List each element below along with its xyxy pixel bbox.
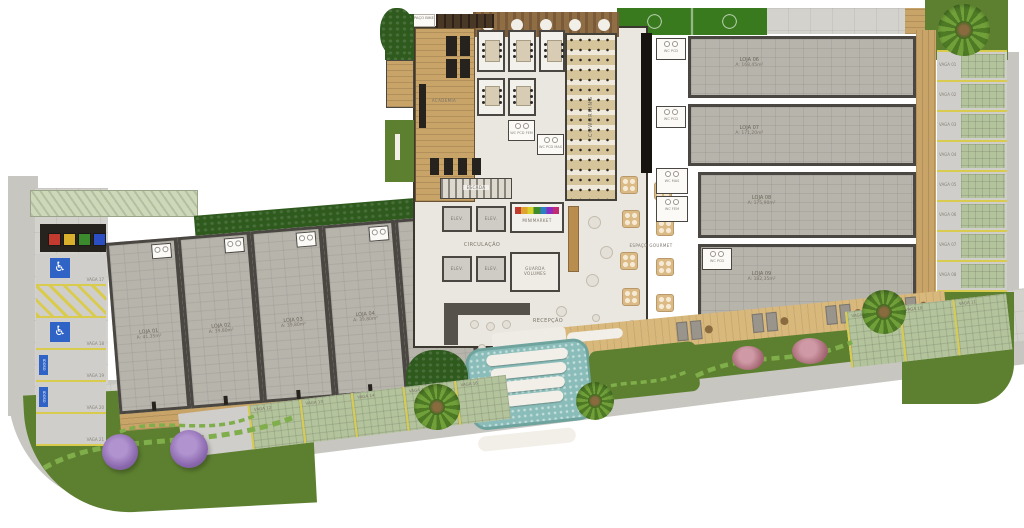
round-table: [588, 216, 601, 229]
unit-loja-08: LOJA 08A: 175,90m²: [698, 172, 916, 238]
circulation-label: CIRCULAÇÃO: [450, 242, 514, 248]
parking-stall: VAGA 12: [248, 400, 305, 450]
store-wc: [224, 237, 245, 254]
coworking-hall: COWORKING: [565, 33, 617, 201]
unit-label: LOJA 08A: 175,90m²: [748, 195, 776, 206]
lawn-left-column: [385, 120, 414, 182]
pavement-top-right: [766, 8, 906, 34]
pouf: [556, 306, 567, 317]
tree-top-left: [380, 8, 414, 56]
gourmet-table: [622, 288, 640, 306]
stall-label: VAGA 12: [254, 405, 272, 412]
elevator: ELEV.: [476, 206, 506, 232]
paver-strip: [961, 144, 1005, 168]
coworking-label: COWORKING: [588, 96, 594, 137]
gourmet-label: ESPAÇO GOURMET: [612, 243, 690, 248]
parking-stall: [36, 286, 106, 318]
stool: [486, 322, 495, 331]
stool: [470, 320, 479, 329]
small-room-left: [386, 60, 414, 108]
meeting-table: [485, 40, 500, 62]
store-door: [152, 401, 157, 410]
lounger-pair: [676, 319, 714, 341]
minimarket-shelf: [515, 207, 559, 214]
paver-strip: [961, 174, 1005, 198]
parking-stall: VAGA 13: [299, 393, 356, 443]
meeting-table: [485, 86, 500, 106]
store-wc: [151, 243, 172, 260]
wc-pcd-fem: WC PCD FEM: [508, 120, 535, 141]
parking-stall: VAGA 02: [937, 82, 1007, 112]
unit-loja-07: LOJA 07A: 171,20m²: [688, 104, 916, 166]
store-label: LOJA 01 A: 41,35m²: [122, 327, 175, 342]
wc-fem: WC FEM: [656, 196, 688, 222]
parking-left-column: VAGA 17 VAGA 18 IDOSO VAGA 19 IDOSO VAGA…: [36, 254, 106, 446]
palm-tree: [862, 290, 906, 334]
sidewalk-right: [1006, 52, 1019, 302]
meeting-table: [516, 86, 531, 106]
stall-label: VAGA 11: [958, 299, 976, 306]
palm-tree: [414, 384, 460, 430]
meeting-table: [547, 40, 562, 62]
unit-label: LOJA 06A: 168,45m²: [735, 57, 763, 68]
purple-tree: [102, 434, 138, 470]
wc-pcd-mas: WC PCD MAS: [537, 134, 564, 155]
elevator: ELEV.: [442, 256, 472, 282]
paver-strip: [961, 114, 1005, 138]
parking-stall: VAGA 05: [937, 172, 1007, 202]
gym-bench: [458, 158, 467, 175]
parking-stall: VAGA 16: [454, 375, 511, 425]
pouf: [592, 314, 600, 322]
emporio-shelf: [568, 206, 579, 272]
store-label: LOJA 02 A: 39,80m²: [195, 321, 248, 336]
meeting-room: [539, 30, 565, 72]
minimarket-label: MINIMARKET: [512, 218, 562, 223]
parking-stall: IDOSO VAGA 20: [36, 382, 106, 414]
pergola-table: [598, 19, 610, 31]
elevator-label: ELEV.: [444, 266, 470, 271]
stall-label: VAGA 13: [305, 399, 323, 406]
parking-stall: VAGA 08: [937, 262, 1007, 292]
unit-label: LOJA 07A: 171,20m²: [735, 125, 763, 136]
store-label: LOJA 03 A: 39,80m²: [267, 315, 320, 330]
treadmill: [460, 59, 471, 79]
elevator: ELEV.: [442, 206, 472, 232]
stall-label: VAGA 14: [357, 393, 375, 400]
stall-label: VAGA 04: [939, 152, 956, 157]
ramp-strip: [30, 190, 198, 217]
stall-label: VAGA 08: [939, 272, 956, 277]
parking-stall: VAGA 14: [351, 387, 408, 437]
paver-strip: [961, 264, 1005, 288]
parking-stall: VAGA 07: [937, 232, 1007, 262]
store-unit: LOJA 02 A: 39,80m²: [178, 231, 264, 408]
stall-label: VAGA 19: [87, 373, 104, 378]
stairs-label: ESCADA: [463, 185, 489, 190]
gourmet-table: [620, 176, 638, 194]
pink-bush: [792, 338, 828, 364]
luggage-room: GUARDAVOLUMES: [510, 252, 560, 292]
store-wc: [368, 225, 389, 242]
paver-strip: [961, 84, 1005, 108]
parking-stall: VAGA 18: [36, 318, 106, 350]
pink-bush: [732, 346, 764, 370]
bike-lockers: [436, 14, 494, 28]
stool: [502, 320, 511, 329]
pergola-table: [569, 19, 581, 31]
paver-strip: [961, 54, 1005, 78]
stall-label: VAGA 18: [87, 341, 104, 346]
stall-label: VAGA 17: [87, 277, 104, 282]
site-plan: LOJA 01 A: 41,35m² LOJA 02 A: 39,80m²: [0, 0, 1024, 528]
store-wc: [296, 231, 317, 248]
palm-tree: [938, 4, 990, 56]
elevator-label: ELEV.: [478, 216, 504, 221]
gourmet-table: [656, 258, 674, 276]
treadmills: [446, 36, 470, 78]
store-label: LOJA 04 A: 39,80m²: [339, 310, 392, 325]
stall-label: VAGA 06: [939, 212, 956, 217]
stall-label: VAGA 07: [939, 242, 956, 247]
reception-desk-return: [444, 315, 458, 345]
dumbbell-rack: [419, 84, 426, 128]
unit-loja-06: LOJA 06A: 168,45m²: [688, 36, 916, 98]
bin-red-icon: [48, 233, 61, 246]
wall-black: [641, 33, 652, 173]
luggage-label: GUARDAVOLUMES: [512, 266, 558, 276]
bin-green-icon: [78, 233, 91, 246]
purple-tree: [170, 430, 208, 468]
gourmet-table: [656, 294, 674, 312]
boardwalk-right: [916, 30, 936, 322]
recycle-bins: [48, 231, 108, 250]
unit-wc-pcd: WC PCD: [656, 106, 686, 128]
reception-desk: [444, 303, 530, 315]
meeting-room: [477, 30, 505, 72]
lounger-pair: [752, 311, 790, 333]
meeting-room: [477, 78, 505, 116]
parking-stall: VAGA 03: [937, 112, 1007, 142]
parking-stall: IDOSO VAGA 19: [36, 350, 106, 382]
elevator-label: ELEV.: [444, 216, 470, 221]
unit-wc-pcd: WC PCD: [656, 38, 686, 60]
stall-label: VAGA 03: [939, 122, 956, 127]
meeting-room: [508, 78, 536, 116]
unit-wc-pcd: WC PCD: [702, 248, 732, 270]
parking-stall: VAGA 06: [937, 202, 1007, 232]
wc-mas: WC MAS: [656, 168, 688, 194]
parking-stall: VAGA 17: [36, 254, 106, 286]
store-unit: LOJA 03 A: 39,80m²: [250, 226, 336, 403]
meeting-room: [508, 30, 536, 72]
gym-benches: [430, 158, 481, 175]
parking-stall: VAGA 04: [937, 142, 1007, 172]
parking-stall: VAGA 01: [937, 52, 1007, 82]
gym-bench: [444, 158, 453, 175]
pergola-table: [540, 19, 552, 31]
idoso-sign: IDOSO: [39, 387, 48, 407]
bin-yellow-icon: [63, 233, 76, 246]
palm-tree: [576, 382, 614, 420]
parking-stall: VAGA 21: [36, 414, 106, 446]
stall-label: VAGA 02: [939, 92, 956, 97]
stall-label: VAGA 16: [460, 380, 478, 387]
stall-label: VAGA 10: [905, 305, 923, 312]
elevator-label: ELEV.: [478, 266, 504, 271]
pergola-table: [511, 19, 523, 31]
round-table: [586, 274, 599, 287]
paver-strip: [961, 234, 1005, 258]
minimarket: MINIMARKET: [510, 202, 564, 233]
gym-bench: [472, 158, 481, 175]
reception-label: RECEPÇÃO: [516, 318, 580, 324]
treadmill: [446, 59, 457, 79]
stairs: ESCADA: [440, 178, 512, 199]
idoso-sign: IDOSO: [39, 355, 48, 375]
unit-label: LOJA 09A: 182,35m²: [748, 271, 776, 282]
stall-label: VAGA 05: [939, 182, 956, 187]
paver-strip: [961, 204, 1005, 228]
store-door: [296, 390, 301, 399]
store-door: [224, 396, 229, 405]
store-unit: LOJA 01 A: 41,35m²: [106, 237, 192, 414]
parking-stall: VAGA 10: [899, 300, 959, 362]
stall-label: VAGA 20: [87, 405, 104, 410]
parking-right-column: VAGA 01 VAGA 02 VAGA 03 VAGA 04 VAGA 05: [937, 50, 1007, 292]
stall-label: VAGA 01: [939, 62, 956, 67]
bench: [395, 134, 400, 160]
meeting-table: [516, 40, 531, 62]
bin-blue-icon: [93, 233, 106, 246]
gym-bench: [430, 158, 439, 175]
parking-stall: VAGA 11: [952, 294, 1012, 356]
store-unit: LOJA 04 A: 39,80m²: [322, 220, 408, 397]
treadmill: [446, 36, 457, 56]
elevator: ELEV.: [476, 256, 506, 282]
stall-label: VAGA 21: [87, 437, 104, 442]
gourmet-table: [622, 210, 640, 228]
treadmill: [460, 36, 471, 56]
gourmet-table: [620, 252, 638, 270]
